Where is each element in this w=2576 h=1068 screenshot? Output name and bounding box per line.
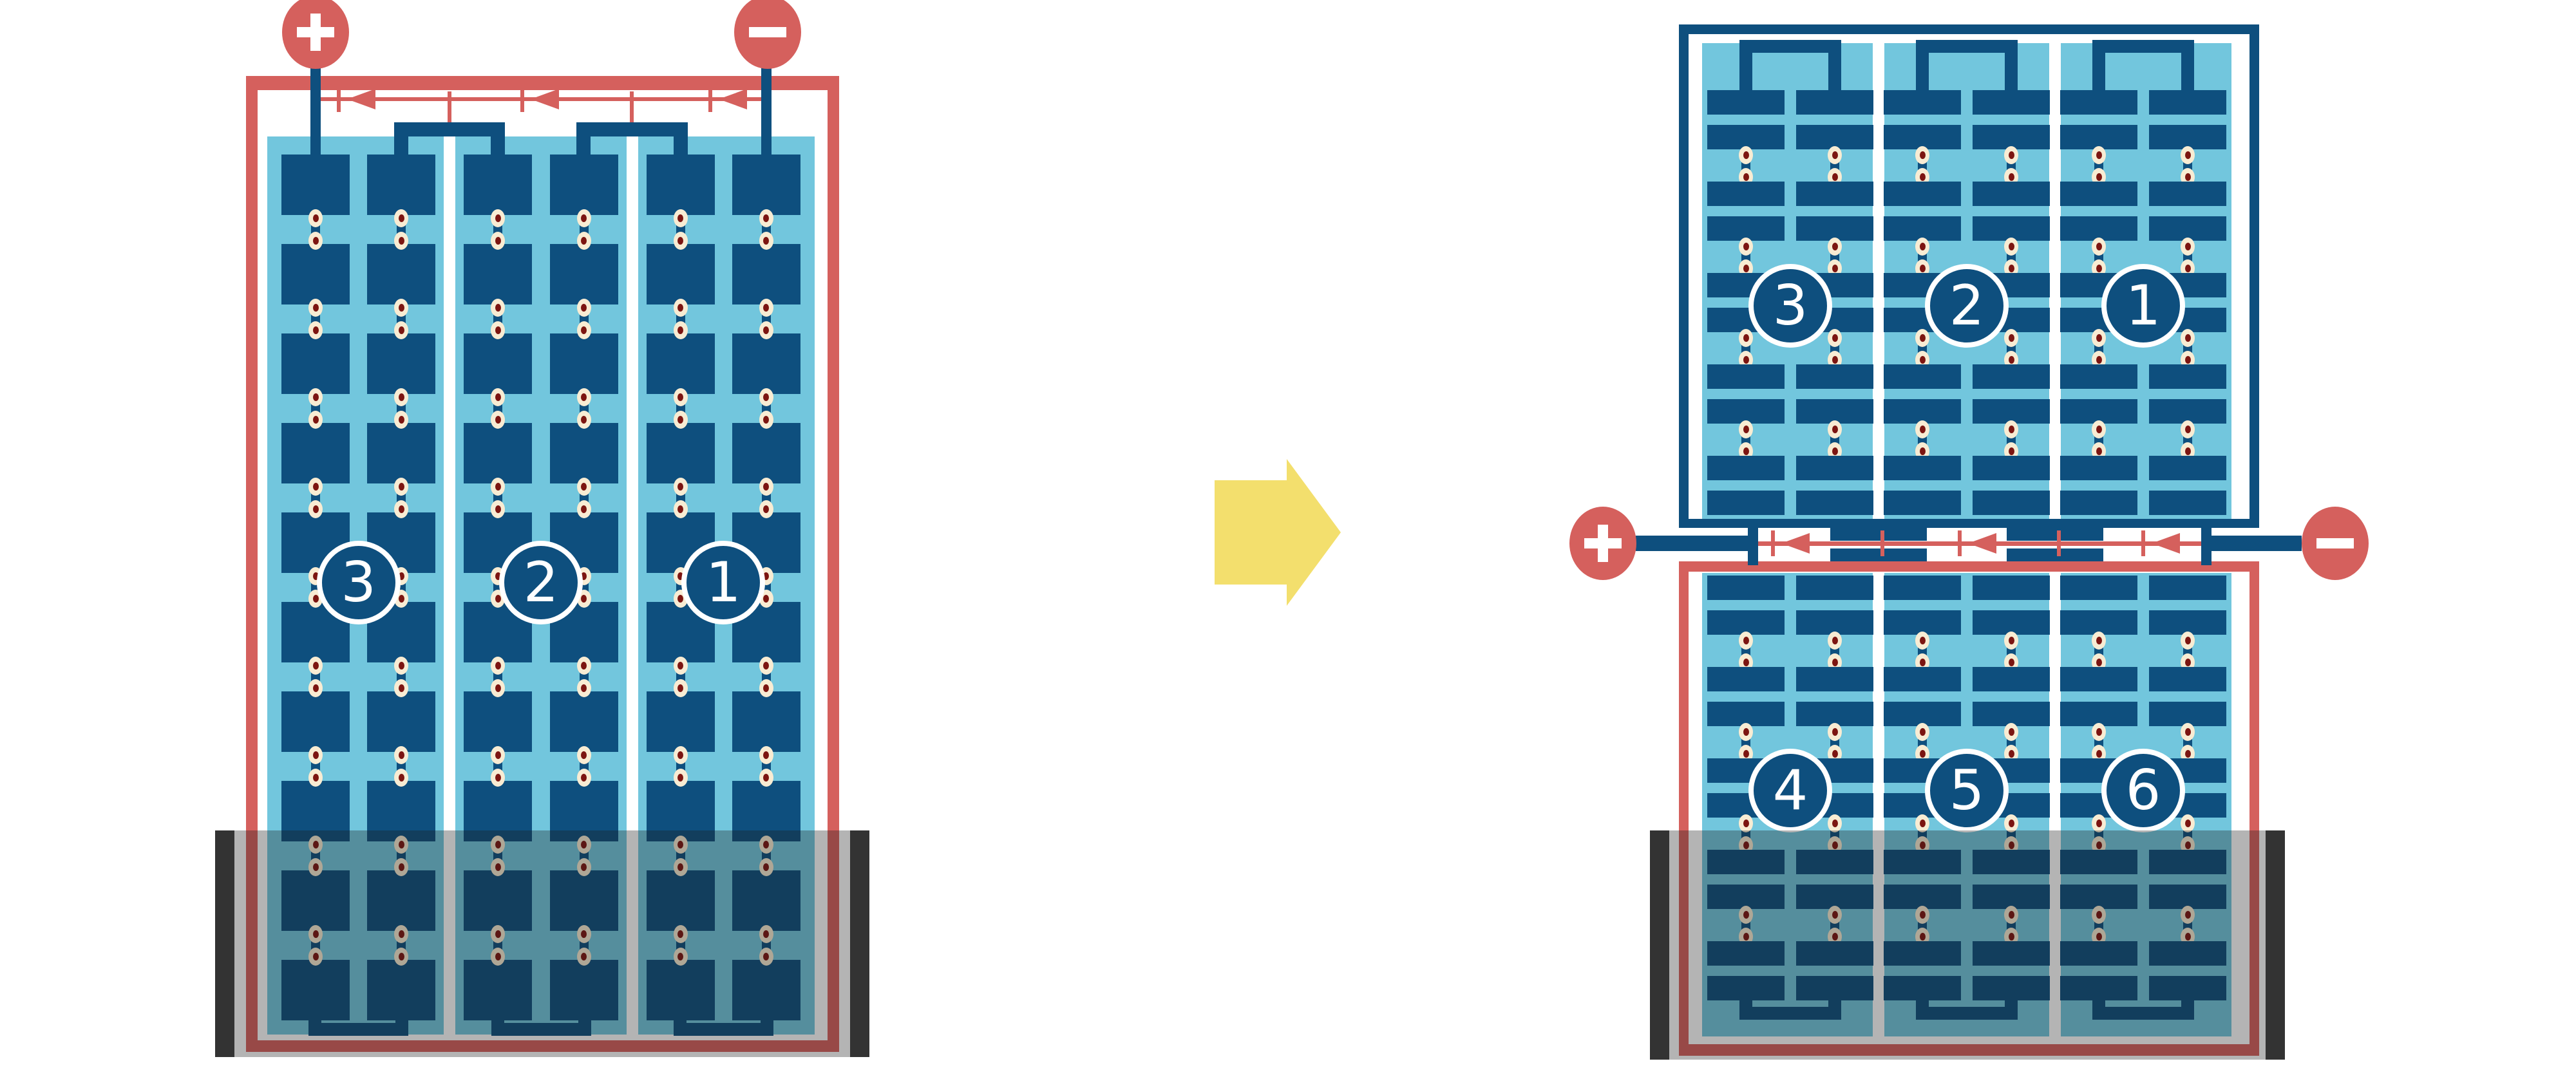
half-cell — [1707, 667, 1785, 691]
half-cell — [1973, 491, 2050, 515]
solder-dot-core — [313, 304, 319, 312]
module-frame-top-bus — [246, 76, 839, 90]
solder-dot-core — [1743, 728, 1749, 736]
terminal-glyph-bar — [1598, 525, 1608, 562]
half-cell — [1884, 364, 1961, 389]
diode-cathode-bar — [708, 86, 712, 112]
solder-dot-core — [1832, 659, 1838, 666]
bypass-diode-icon — [531, 89, 559, 109]
solder-dot-core — [1743, 447, 1749, 455]
terminal-lead — [2210, 536, 2302, 551]
solder-dot-core — [313, 326, 319, 334]
solder-dot-core — [1920, 659, 1926, 666]
top-interconnect — [394, 122, 505, 169]
solder-dot-core — [1832, 637, 1838, 644]
half-cell — [1884, 667, 1961, 691]
solder-dot-core — [1832, 447, 1838, 455]
string-number-badge: 2 — [499, 541, 583, 624]
half-cell — [2149, 182, 2226, 206]
solder-dot-core — [2009, 750, 2014, 758]
half-cell — [1973, 182, 2050, 206]
string-separator — [1873, 43, 1884, 519]
solar-cell — [464, 423, 532, 483]
solder-dot-core — [2096, 637, 2102, 644]
solar-cell — [647, 423, 715, 483]
half-cell — [1796, 456, 1873, 480]
solder-dot-core — [2185, 334, 2191, 342]
solder-dot-core — [313, 214, 319, 222]
arrow-body — [1215, 480, 1287, 585]
diode-cathode-bar — [1958, 530, 1962, 556]
half-cell — [2060, 90, 2137, 115]
solder-dot-core — [1832, 426, 1838, 433]
solder-dot-core — [1743, 820, 1749, 827]
string-number-badge: 6 — [2101, 749, 2185, 832]
solder-dot-core — [495, 393, 501, 401]
half-cell — [1796, 364, 1873, 389]
junction-end-bar — [1748, 521, 1758, 565]
solder-dot-core — [1920, 356, 1926, 364]
half-cell — [1973, 576, 2050, 600]
solder-dot-core — [1832, 750, 1838, 758]
solder-dot-core — [1920, 820, 1926, 827]
half-cell — [1884, 182, 1961, 206]
solar-cell — [647, 333, 715, 394]
shade-end-cap — [215, 830, 234, 1057]
bypass-diode-icon — [347, 89, 375, 109]
solder-dot-core — [399, 393, 404, 401]
solder-dot-core — [2009, 173, 2014, 181]
solar-cell — [647, 244, 715, 304]
half-cell — [1707, 576, 1785, 600]
solder-dot-core — [495, 505, 501, 513]
solder-dot-core — [2185, 659, 2191, 666]
solder-dot-core — [495, 416, 501, 424]
solder-dot-core — [1920, 426, 1926, 433]
solder-dot-core — [2096, 334, 2102, 342]
half-cell — [1884, 90, 1961, 115]
solar-cell — [281, 423, 350, 483]
string-number: 2 — [524, 555, 559, 610]
half-cell — [2149, 364, 2226, 389]
diode-cathode-bar — [337, 86, 341, 112]
solder-dot-core — [1743, 173, 1749, 181]
solder-dot-core — [399, 326, 404, 334]
solder-dot-core — [2185, 750, 2191, 758]
solder-dot-core — [495, 304, 501, 312]
solder-dot-core — [2096, 659, 2102, 666]
half-cell — [2060, 576, 2137, 600]
solder-dot-core — [495, 483, 501, 491]
diode-tap-bar — [2057, 530, 2061, 556]
solder-dot-core — [1920, 265, 1926, 272]
solder-dot-core — [2185, 173, 2191, 181]
solar-cell — [550, 423, 618, 483]
half-cell — [1884, 576, 1961, 600]
solder-dot-core — [313, 751, 319, 759]
solder-dot-core — [495, 595, 501, 603]
top-interconnect — [1739, 40, 1841, 93]
terminal-glyph-bar — [2316, 538, 2354, 548]
solder-dot-core — [1743, 243, 1749, 250]
solar-cell — [732, 244, 800, 304]
half-cell — [2060, 456, 2137, 480]
solder-dot-core — [1920, 750, 1926, 758]
solder-dot-core — [399, 214, 404, 222]
top-interconnect — [576, 122, 688, 169]
solder-dot-core — [2096, 750, 2102, 758]
solder-dot-core — [2009, 265, 2014, 272]
shade-end-cap — [2266, 830, 2285, 1060]
shade-overlay — [215, 830, 869, 1057]
solder-dot-core — [313, 505, 319, 513]
solder-dot-core — [495, 326, 501, 334]
solder-dot-core — [1832, 820, 1838, 827]
string-tab — [1830, 548, 1927, 561]
solder-dot-core — [313, 684, 319, 692]
half-cell — [2060, 667, 2137, 691]
bypass-diode-icon — [2152, 533, 2180, 554]
solar-cell — [281, 691, 350, 752]
solder-dot-core — [1832, 728, 1838, 736]
solder-dot-core — [399, 483, 404, 491]
string-number: 1 — [2126, 278, 2161, 333]
half-cell — [1973, 667, 2050, 691]
solder-dot-core — [2185, 265, 2191, 272]
half-cell — [1973, 90, 2050, 115]
solar-cell — [367, 691, 435, 752]
bypass-diode-icon — [1968, 533, 1996, 554]
solar-cell — [367, 333, 435, 394]
half-cell — [1707, 456, 1785, 480]
solar-cell — [732, 333, 800, 394]
solder-dot-core — [1743, 334, 1749, 342]
half-cell — [1796, 182, 1873, 206]
string-number-badge: 3 — [1748, 264, 1832, 348]
solder-dot-core — [2009, 447, 2014, 455]
half-cell — [2149, 456, 2226, 480]
half-cell — [1707, 491, 1785, 515]
string-number-badge: 4 — [1748, 749, 1832, 832]
half-cell — [2149, 90, 2226, 115]
half-cell — [1884, 456, 1961, 480]
solar-cell — [464, 691, 532, 752]
solar-cell — [550, 333, 618, 394]
solder-dot-core — [2096, 728, 2102, 736]
solder-dot-core — [2009, 334, 2014, 342]
solder-dot-core — [2096, 265, 2102, 272]
module-frame-left — [1679, 24, 1689, 528]
string-number: 3 — [1773, 278, 1808, 333]
half-cell — [2149, 576, 2226, 600]
solar-cell — [647, 691, 715, 752]
solder-dot-core — [1832, 265, 1838, 272]
solder-dot-core — [1920, 334, 1926, 342]
solder-dot-core — [1743, 356, 1749, 364]
solder-dot-core — [2009, 820, 2014, 827]
half-cell — [1884, 491, 1961, 515]
solder-dot-core — [495, 684, 501, 692]
string-tab — [2007, 528, 2103, 541]
module-frame-right — [2249, 24, 2259, 528]
half-cell — [1707, 364, 1785, 389]
solder-dot-core — [495, 662, 501, 670]
half-cell — [2149, 491, 2226, 515]
solder-dot-core — [2096, 151, 2102, 159]
solar-cell — [550, 244, 618, 304]
half-cell — [1973, 364, 2050, 389]
solder-dot-core — [2096, 447, 2102, 455]
solder-dot-core — [1743, 426, 1749, 433]
solder-dot-core — [2185, 243, 2191, 250]
solder-dot-core — [399, 774, 404, 782]
solder-dot-core — [1920, 151, 1926, 159]
solder-dot-core — [2185, 728, 2191, 736]
solder-dot-core — [399, 416, 404, 424]
string-number: 1 — [706, 555, 741, 610]
solder-dot-core — [2009, 426, 2014, 433]
solder-dot-core — [2009, 637, 2014, 644]
solder-dot-core — [399, 751, 404, 759]
half-cell — [1796, 667, 1873, 691]
solder-dot-core — [2185, 447, 2191, 455]
bypass-diode-icon — [1781, 533, 1810, 554]
solder-dot-core — [2009, 728, 2014, 736]
string-number-badge: 3 — [317, 541, 401, 624]
string-number: 3 — [341, 555, 376, 610]
diode-cathode-bar — [2141, 530, 2145, 556]
solar-cell — [367, 244, 435, 304]
string-number: 6 — [2126, 763, 2161, 818]
solder-dot-core — [495, 237, 501, 245]
solder-dot-core — [313, 393, 319, 401]
solder-dot-core — [1832, 356, 1838, 364]
half-cell — [2060, 491, 2137, 515]
top-interconnect — [2092, 40, 2194, 93]
half-cell — [1796, 90, 1873, 115]
solder-dot-core — [2096, 426, 2102, 433]
solder-dot-core — [495, 774, 501, 782]
diode-tap-bar — [1880, 530, 1884, 556]
diode-tap-line — [448, 91, 451, 124]
solar-cell — [367, 423, 435, 483]
solder-dot-core — [399, 595, 404, 603]
solder-dot-core — [2096, 173, 2102, 181]
half-cell — [1707, 182, 1785, 206]
terminal-glyph-bar — [749, 27, 786, 37]
string-number: 5 — [1949, 763, 1985, 818]
string-separator — [2049, 43, 2061, 519]
solder-dot-core — [313, 774, 319, 782]
solar-cell — [732, 691, 800, 752]
solder-dot-core — [2096, 820, 2102, 827]
solder-dot-core — [1832, 151, 1838, 159]
solder-dot-core — [2096, 356, 2102, 364]
solder-dot-core — [2009, 151, 2014, 159]
string-number: 4 — [1773, 763, 1808, 818]
diagram-canvas: 321 321 456 — [0, 0, 2576, 1068]
terminal-post — [310, 55, 321, 193]
solder-dot-core — [399, 662, 404, 670]
solar-cell — [281, 333, 350, 394]
string-number: 2 — [1949, 278, 1985, 333]
solder-dot-core — [313, 483, 319, 491]
diode-tap-line — [630, 91, 634, 124]
diode-cathode-bar — [520, 86, 524, 112]
solder-dot-core — [2185, 637, 2191, 644]
solder-dot-core — [1920, 637, 1926, 644]
solder-dot-core — [2009, 356, 2014, 364]
solder-dot-core — [2185, 426, 2191, 433]
solar-cell — [281, 244, 350, 304]
shade-end-cap — [850, 830, 869, 1057]
solder-dot-core — [2009, 659, 2014, 666]
terminal-lead — [1636, 536, 1749, 551]
string-tab — [2007, 548, 2103, 561]
top-interconnect — [1916, 40, 2018, 93]
solder-dot-core — [2185, 820, 2191, 827]
solder-dot-core — [495, 214, 501, 222]
diode-cathode-bar — [1771, 530, 1775, 556]
solder-dot-core — [1920, 447, 1926, 455]
solder-dot-core — [1743, 151, 1749, 159]
solder-dot-core — [1743, 265, 1749, 272]
solder-dot-core — [399, 505, 404, 513]
half-cell — [2060, 182, 2137, 206]
solar-cell — [464, 244, 532, 304]
solder-dot-core — [1832, 334, 1838, 342]
module-frame-top — [1679, 24, 2259, 34]
bypass-diode-icon — [719, 89, 747, 109]
string-number-badge: 1 — [2101, 264, 2185, 348]
solder-dot-core — [2096, 243, 2102, 250]
solar-cell — [464, 333, 532, 394]
half-cell — [1707, 90, 1785, 115]
solder-dot-core — [495, 751, 501, 759]
solder-dot-core — [2185, 151, 2191, 159]
solder-dot-core — [2185, 356, 2191, 364]
half-cell — [2060, 364, 2137, 389]
shade-end-cap — [1650, 830, 1669, 1060]
solder-dot-core — [1832, 243, 1838, 250]
solar-cell — [732, 423, 800, 483]
string-number-badge: 5 — [1925, 749, 2009, 832]
string-number-badge: 1 — [681, 541, 765, 624]
string-tab — [1830, 528, 1927, 541]
arrow-head-icon — [1287, 459, 1341, 606]
solder-dot-core — [1743, 659, 1749, 666]
solder-dot-core — [1832, 173, 1838, 181]
solder-dot-core — [1920, 173, 1926, 181]
half-cell — [1796, 576, 1873, 600]
terminal-post — [761, 55, 772, 193]
solder-dot-core — [399, 684, 404, 692]
solder-dot-core — [313, 237, 319, 245]
module-frame-bottom — [1679, 519, 2259, 528]
solder-dot-core — [399, 304, 404, 312]
solder-dot-core — [313, 416, 319, 424]
solder-dot-core — [399, 237, 404, 245]
module-frame-top — [1679, 561, 2259, 572]
half-cell — [1973, 456, 2050, 480]
solder-dot-core — [313, 662, 319, 670]
solder-dot-core — [1743, 637, 1749, 644]
solar-cell — [550, 691, 618, 752]
half-cell — [2149, 667, 2226, 691]
solder-dot-core — [2009, 243, 2014, 250]
terminal-glyph-bar — [310, 14, 321, 51]
solder-dot-core — [1743, 750, 1749, 758]
solder-dot-core — [313, 595, 319, 603]
solder-dot-core — [1920, 243, 1926, 250]
half-cell — [1796, 491, 1873, 515]
solder-dot-core — [1920, 728, 1926, 736]
shade-overlay — [1650, 830, 2285, 1060]
string-number-badge: 2 — [1925, 264, 2009, 348]
